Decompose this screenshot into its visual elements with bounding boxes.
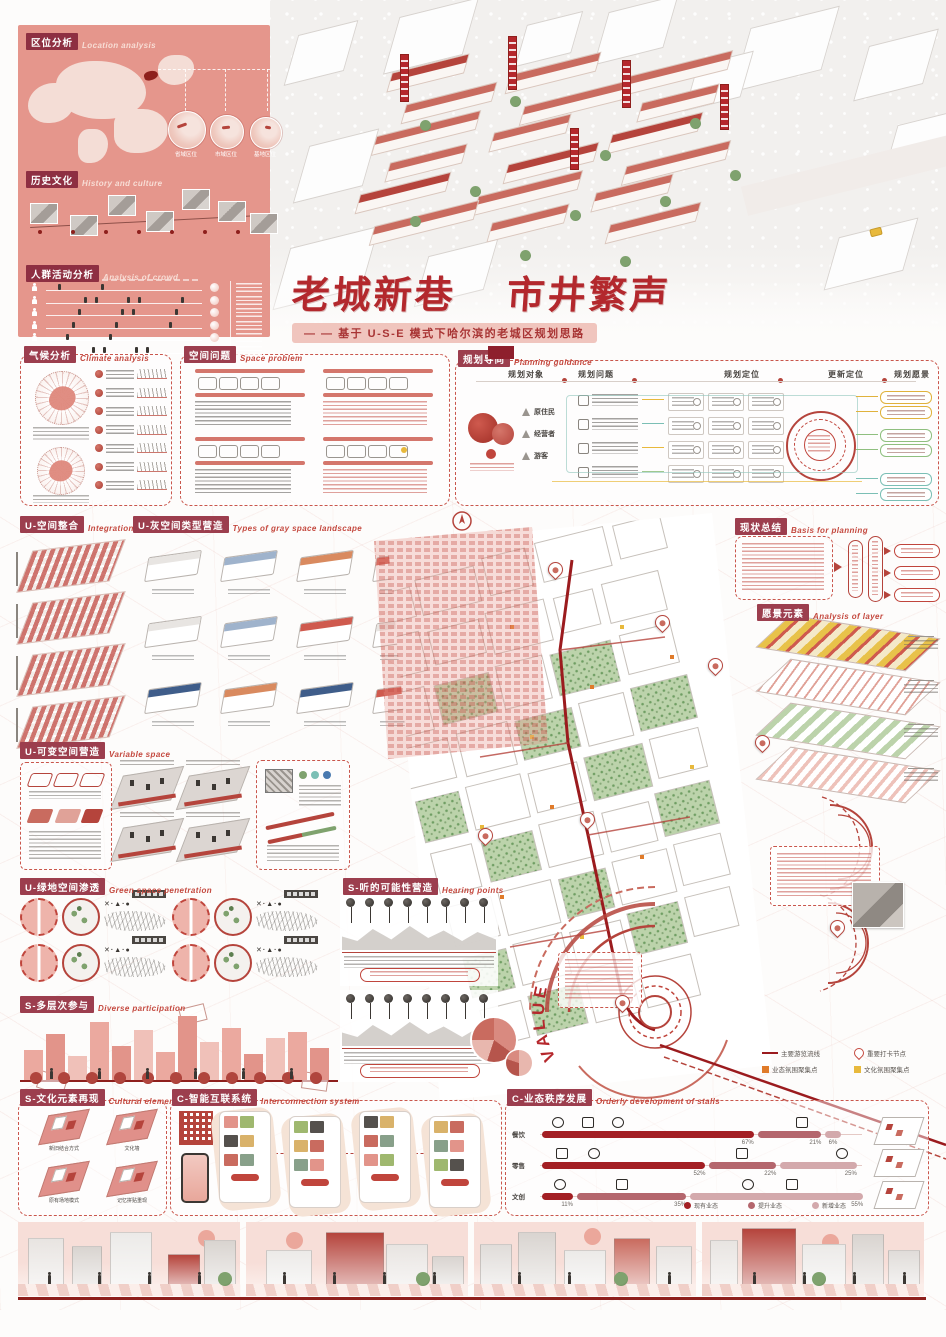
object-bubble-small <box>486 449 496 459</box>
diagram-caption <box>323 469 427 493</box>
section-title-en: Diverse participation <box>98 1004 186 1013</box>
legend-square-swatch <box>762 1066 769 1073</box>
gray-space-module <box>218 608 282 664</box>
section-title-zh: U-可变空间营造 <box>20 742 105 759</box>
chart-legend-label: 新增业态 <box>822 1201 846 1210</box>
bar-percent-label: 22% <box>764 1171 776 1177</box>
person-figure <box>98 1071 101 1079</box>
sound-point-icon <box>403 994 413 1020</box>
vision-pill <box>880 429 932 442</box>
thumb-dot <box>895 1194 903 1200</box>
crowd-figure <box>58 284 61 290</box>
compass-icon <box>453 512 471 530</box>
bar-row-label: 文创 <box>512 1191 525 1201</box>
street-building <box>110 1232 152 1286</box>
chart-legend-item: 现有业态 <box>684 1201 718 1210</box>
axis-line <box>16 552 18 586</box>
section-header-crowd: 人群活动分析 Analysis of crowd <box>26 265 178 282</box>
sound-point-icon <box>460 994 470 1020</box>
intro-panel: 区位分析 Location analysis 省域区位市域区位基地区位 历史文化… <box>18 25 270 337</box>
chart-legend-dot <box>812 1202 819 1209</box>
stall-mark <box>226 830 230 836</box>
gray-space-module <box>142 542 206 598</box>
street-tree <box>30 1072 42 1084</box>
gray-space-module <box>142 674 206 730</box>
formula-icons: ✕·▲·● <box>104 946 131 954</box>
climate-item-icon <box>95 370 103 378</box>
sketch-drawing <box>256 911 318 931</box>
crowd-figure <box>84 297 87 303</box>
tree <box>600 150 611 161</box>
legend-item: 文化氛围聚集点 <box>854 1064 910 1074</box>
sound-point-icon <box>422 994 432 1020</box>
type-tag <box>284 890 318 898</box>
basis-output-pill <box>894 566 940 580</box>
before-circle <box>172 944 210 982</box>
street-bar <box>195 369 305 373</box>
street-tree <box>114 1072 126 1084</box>
section-header-hearing: S-听的可能性营造 Hearing points <box>343 878 504 895</box>
section-title-zh: 空间问题 <box>184 346 236 363</box>
layer-connector <box>908 680 934 681</box>
history-photo <box>146 211 174 232</box>
street-building <box>656 1246 692 1286</box>
pill-connector <box>856 449 878 450</box>
person-figure <box>50 1071 53 1079</box>
section-title-en: Variable space <box>109 750 170 759</box>
culture-axon-label: 文化墙 <box>103 1145 161 1152</box>
sound-point-icon <box>384 994 394 1020</box>
culture-axon: 文化墙 <box>103 1109 161 1157</box>
knife-icon <box>582 1117 594 1128</box>
sketch-drawing <box>104 911 166 931</box>
planning-column-header: 规划愿景 <box>894 369 930 380</box>
section-title-en: Interconnection system <box>261 1097 360 1106</box>
stall-mark <box>196 780 200 786</box>
bag-icon <box>616 1179 628 1190</box>
stall-mark <box>160 830 164 836</box>
climate-item-chart <box>137 388 167 398</box>
app-thumbnail[interactable] <box>364 1116 378 1128</box>
crowd-figure <box>109 334 112 340</box>
app-thumbnail[interactable] <box>380 1116 394 1128</box>
app-thumbnail[interactable] <box>240 1116 254 1128</box>
before-circle <box>172 898 210 936</box>
stall-axon-thumb <box>873 1181 924 1209</box>
wind-rose-1 <box>35 371 89 425</box>
module-body <box>296 682 354 714</box>
app-thumbnail[interactable] <box>380 1135 394 1147</box>
space-problem-diagram <box>193 367 311 429</box>
space-problem-diagram <box>193 435 311 497</box>
layer-connector <box>908 636 934 637</box>
smartphone-icon[interactable] <box>181 1153 209 1203</box>
title-part-2: 市井繁声 <box>505 275 672 317</box>
module-body <box>144 550 202 582</box>
subject-label: 原住民 <box>534 407 555 417</box>
sound-point-icon <box>365 898 375 924</box>
tree <box>510 96 521 107</box>
person-figure <box>148 1275 151 1284</box>
app-thumbnail[interactable] <box>240 1135 254 1147</box>
legend-square-swatch <box>854 1066 861 1073</box>
planning-subject: 原住民 <box>522 407 555 417</box>
culture-axon-label: 原有场地模式 <box>35 1197 93 1204</box>
rendering-panel <box>702 1222 924 1296</box>
app-thumbnail[interactable] <box>224 1135 238 1147</box>
culture-box: 新旧结合方式文化墙原有场地模式记忆拼贴重现 <box>18 1100 167 1216</box>
timeline-dot <box>137 230 141 234</box>
street-building <box>432 1256 464 1286</box>
app-thumbnail[interactable] <box>450 1121 464 1133</box>
street-tree <box>198 1072 210 1084</box>
sound-point-icon <box>479 994 489 1020</box>
mic-icon <box>554 1179 566 1190</box>
app-thumbnail[interactable] <box>240 1154 254 1166</box>
street-tree <box>310 1072 322 1084</box>
person-figure <box>853 1275 856 1284</box>
bar-percent-label: 25% <box>845 1171 857 1177</box>
bar-percent-label: 6% <box>829 1140 838 1146</box>
row-note <box>236 333 262 342</box>
hearing-strip <box>340 894 498 986</box>
legend-label: 文化氛围聚集点 <box>864 1064 910 1074</box>
app-thumbnail[interactable] <box>434 1140 448 1152</box>
street-bar <box>323 437 433 441</box>
paved-ground <box>702 1284 924 1296</box>
climate-item <box>95 425 183 435</box>
stall-mark <box>146 784 150 790</box>
section-title-zh: S-多层次参与 <box>20 996 94 1013</box>
vision-pill-text <box>887 410 925 416</box>
stalls-chart-box: 餐饮67%21%6%零售52%22%25%文创11%35%55% 现有业态提升业… <box>505 1100 929 1216</box>
bar-segment <box>825 1131 840 1138</box>
section-title-zh: 气候分析 <box>24 346 76 363</box>
app-screen-card[interactable] <box>359 1111 411 1203</box>
planning-column-header: 更新定位 <box>828 369 864 380</box>
bin-icon <box>796 1117 808 1128</box>
row-stat-dot <box>210 308 219 317</box>
history-photo <box>218 201 246 222</box>
after-circle <box>62 944 100 982</box>
app-thumbnail[interactable] <box>224 1116 238 1128</box>
lock-icon <box>742 1179 754 1190</box>
app-thumbnail[interactable] <box>364 1135 378 1147</box>
courtyard-label <box>120 812 174 818</box>
tree <box>420 120 431 131</box>
title-block: 老城新巷 市井繁声 — — 基于 U-S-E 模式下哈尔滨的老城区规划思路 <box>292 264 732 360</box>
app-screen-card[interactable] <box>219 1111 271 1203</box>
app-action-button[interactable] <box>301 1179 329 1186</box>
row-note <box>236 283 262 292</box>
participation-pie-small <box>506 1050 532 1076</box>
street-building <box>710 1240 738 1286</box>
pill-text <box>901 570 933 576</box>
street-building <box>518 1232 556 1286</box>
sketch-drawing <box>104 957 166 977</box>
street-tree <box>226 1072 238 1084</box>
crowd-figure <box>95 297 98 303</box>
climate-item-chart <box>137 462 167 472</box>
axon-base <box>38 1109 90 1146</box>
site-photo-thumbnail <box>852 882 904 928</box>
bar-percent-label: 55% <box>851 1202 863 1208</box>
module-body <box>220 682 278 714</box>
module-label <box>228 589 270 594</box>
location-circle <box>210 115 244 149</box>
street-tree <box>812 1272 826 1286</box>
formula-icons: ✕·▲·● <box>256 946 283 954</box>
person-figure <box>518 1275 521 1284</box>
pill-connector <box>856 493 878 494</box>
basis-pill-column-2 <box>868 536 883 602</box>
stall-axon-thumb <box>873 1117 924 1145</box>
app-thumbnail[interactable] <box>310 1140 324 1152</box>
bar-percent-label: 67% <box>742 1140 754 1146</box>
sound-point-icon <box>479 898 489 924</box>
person-figure <box>753 1275 756 1284</box>
yellow-flow-line <box>552 481 862 482</box>
street-building <box>28 1238 64 1286</box>
gray-space-module <box>218 674 282 730</box>
stall-axon-thumb <box>873 1149 924 1177</box>
climate-item-label <box>106 425 134 434</box>
app-thumbnail[interactable] <box>450 1140 464 1152</box>
person-figure <box>383 1275 386 1284</box>
activity-row-icon <box>32 321 37 326</box>
street-bar <box>323 461 433 465</box>
app-screen-card[interactable] <box>289 1116 341 1208</box>
legend-label: 业态氛围聚集点 <box>772 1064 818 1074</box>
module-label <box>152 589 194 594</box>
history-photo <box>30 203 58 224</box>
module-label <box>152 721 194 726</box>
red-banner <box>570 128 579 170</box>
gray-space-module <box>142 608 206 664</box>
location-circle <box>250 117 282 149</box>
row-line <box>46 303 202 304</box>
street-tree <box>614 1272 628 1286</box>
bar-segment <box>542 1162 705 1169</box>
climate-item-label <box>106 407 134 416</box>
rendering-panel <box>18 1222 240 1296</box>
gray-space-module <box>294 542 358 598</box>
block-outline <box>389 377 408 390</box>
section-title-zh: C-业态秩序发展 <box>507 1089 592 1106</box>
harbin-marker <box>143 69 159 82</box>
person-figure <box>290 1071 293 1079</box>
stall-mark <box>212 836 216 842</box>
timeline-dot <box>71 230 75 234</box>
basis-output-pill <box>894 588 940 602</box>
app-thumbnail[interactable] <box>380 1154 394 1166</box>
axis-line <box>16 708 18 742</box>
section-header-location: 区位分析 Location analysis <box>26 33 156 50</box>
timeline-dot <box>170 230 174 234</box>
sound-point-icon <box>441 898 451 924</box>
legend-line-swatch <box>762 1052 778 1054</box>
activity-row-icon <box>32 283 37 288</box>
section-title-en: History and culture <box>82 179 163 188</box>
thumb-dot <box>895 1162 903 1168</box>
block-outline <box>261 377 280 390</box>
crowd-figure <box>138 297 141 303</box>
street-tree <box>86 1072 98 1084</box>
stall-mark <box>130 832 134 838</box>
bar-segment <box>542 1193 573 1200</box>
space-problem-diagram <box>321 435 439 497</box>
app-thumbnail[interactable] <box>434 1121 448 1133</box>
basis-pill-column-1 <box>848 540 863 598</box>
app-thumbnail[interactable] <box>364 1154 378 1166</box>
tick-labels <box>344 1052 494 1064</box>
section-title-zh: 现状总结 <box>735 518 787 535</box>
tree <box>570 210 581 221</box>
thumb-dot <box>885 1124 893 1130</box>
section-title-en: Location analysis <box>82 41 156 50</box>
row-line <box>46 328 202 329</box>
row-stat-dot <box>210 296 219 305</box>
thumb-dot <box>885 1156 893 1162</box>
section-title-en: Types of gray space landscape <box>233 524 363 533</box>
block-outline <box>240 377 259 390</box>
app-action-button[interactable] <box>371 1174 399 1181</box>
section-title-zh: 人群活动分析 <box>26 265 99 282</box>
module-body <box>220 550 278 582</box>
section-header-space-problem: 空间问题 Space problem <box>184 346 303 363</box>
app-thumbnail[interactable] <box>310 1159 324 1171</box>
block-outline <box>347 445 366 458</box>
app-thumbnail[interactable] <box>294 1140 308 1152</box>
thumb-dot <box>895 1130 903 1136</box>
module-label <box>304 589 346 594</box>
sound-point-icon <box>384 898 394 924</box>
courtyard-axon <box>182 820 244 862</box>
stall-mark <box>130 780 134 786</box>
main-title: 老城新巷 市井繁声 <box>290 264 734 319</box>
title-stamp <box>488 346 514 359</box>
module-label <box>304 721 346 726</box>
sound-point-icon <box>365 994 375 1020</box>
bar-row-label: 零售 <box>512 1160 525 1170</box>
culture-axon-label: 记忆拼贴重现 <box>103 1197 161 1204</box>
section-header-stalls: C-业态秩序发展 Orderly development of stalls <box>507 1089 720 1106</box>
section-title-en: Analysis of layer <box>813 612 883 621</box>
object-bubble-mid <box>492 423 514 445</box>
street-bar <box>195 393 305 397</box>
vision-pill <box>880 406 932 419</box>
street-tree <box>170 1072 182 1084</box>
vision-pill <box>880 473 932 486</box>
after-circle <box>62 898 100 936</box>
street-tree <box>254 1072 266 1084</box>
crowd-figure <box>132 309 135 315</box>
vision-pill-text <box>887 492 925 498</box>
person-figure <box>48 1275 51 1284</box>
section-title-zh: 愿景元素 <box>757 604 809 621</box>
teal-flow-frame <box>566 395 858 473</box>
climate-item-chart <box>137 369 167 379</box>
skyline-building <box>68 1056 87 1080</box>
culture-axon: 新旧结合方式 <box>35 1109 93 1157</box>
section-title-en: Green space penetration <box>109 886 212 895</box>
crowd-figure <box>169 322 172 328</box>
climate-item <box>95 388 183 398</box>
section-title-en: Basis for planning <box>791 526 868 535</box>
app-thumbnail[interactable] <box>310 1121 324 1133</box>
street-building <box>742 1228 796 1286</box>
section-header-participation: S-多层次参与 Diverse participation <box>20 996 186 1013</box>
climate-item-icon <box>95 426 103 434</box>
cursor-icon <box>836 1148 848 1159</box>
tree <box>410 216 421 227</box>
gray-space-module <box>294 608 358 664</box>
bar-segment <box>690 1193 863 1200</box>
courtyard-label <box>186 812 240 818</box>
type-tag <box>132 936 166 944</box>
chart-legend-label: 提升业态 <box>758 1201 782 1210</box>
module-body <box>144 682 202 714</box>
after-circle <box>214 898 252 936</box>
app-action-button[interactable] <box>231 1174 259 1181</box>
culture-axon: 原有场地模式 <box>35 1161 93 1209</box>
crowd-figure <box>66 334 69 340</box>
chart-legend-item: 新增业态 <box>812 1201 846 1210</box>
row-stat-dot <box>210 321 219 330</box>
climate-item <box>95 462 183 472</box>
app-screen-card[interactable] <box>429 1116 481 1208</box>
red-baseline <box>342 952 496 953</box>
vision-pill-text <box>887 433 925 439</box>
chart-legend-dot <box>684 1202 691 1209</box>
subject-label: 经营者 <box>534 429 555 439</box>
climate-item-chart <box>137 425 167 435</box>
row-note <box>236 321 262 330</box>
row-note <box>236 308 262 317</box>
footer-rule <box>18 1297 926 1300</box>
app-thumbnail[interactable] <box>224 1154 238 1166</box>
block-outline <box>240 445 259 458</box>
layer-label <box>904 772 938 782</box>
crowd-figure <box>78 309 81 315</box>
interconnect-box <box>170 1100 502 1216</box>
block-outline <box>219 445 238 458</box>
app-thumbnail[interactable] <box>294 1159 308 1171</box>
app-action-button[interactable] <box>441 1179 469 1186</box>
crowd-figure <box>72 322 75 328</box>
pill-text <box>901 548 933 554</box>
camera-icon <box>736 1148 748 1159</box>
app-thumbnail[interactable] <box>294 1121 308 1133</box>
section-header-layers: 愿景元素 Analysis of layer <box>757 604 883 621</box>
sound-point-icon <box>403 898 413 924</box>
section-title-zh: U-灰空间类型营造 <box>133 516 229 533</box>
mug-icon <box>556 1148 568 1159</box>
diagram-caption <box>195 401 291 425</box>
section-header-history: 历史文化 History and culture <box>26 171 163 188</box>
street-tree <box>218 1272 232 1286</box>
section-title-zh: S-听的可能性营造 <box>343 878 438 895</box>
app-thumbnail[interactable] <box>450 1159 464 1171</box>
participation-skyline <box>20 1012 340 1088</box>
map-legend: 主要游览流线重要打卡节点业态氛围聚集点文化氛围聚集点 <box>762 1048 940 1090</box>
app-thumbnail[interactable] <box>434 1159 448 1171</box>
section-header-variable: U-可变空间营造 Variable space <box>20 742 170 759</box>
section-title-zh: U-绿地空间渗透 <box>20 878 105 895</box>
climate-item-label <box>106 481 134 490</box>
layer-connector <box>908 768 934 769</box>
paved-ground <box>474 1284 696 1296</box>
